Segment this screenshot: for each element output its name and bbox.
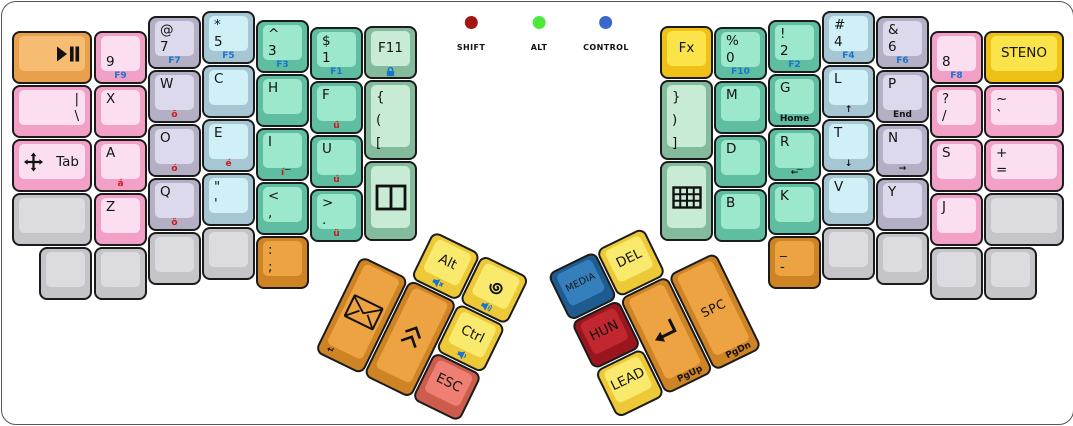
key-front-legend: õ — [150, 110, 199, 121]
key-o[interactable]: Oó — [148, 124, 201, 177]
key-percent-0[interactable]: %0F10 — [714, 27, 767, 80]
key-plus-equals[interactable]: += — [984, 139, 1064, 192]
key-legend: P — [888, 76, 922, 93]
key-a[interactable]: Aá — [94, 139, 147, 192]
key-legend: F — [322, 87, 356, 104]
key-legend: T — [834, 125, 868, 142]
key-legend: U — [322, 141, 356, 158]
key-legend: C — [214, 71, 248, 88]
key-legend: SPC — [698, 295, 729, 322]
key-legend: W — [160, 76, 194, 93]
key-blank[interactable] — [12, 193, 92, 246]
key-greater-period[interactable]: >.ü — [310, 189, 363, 242]
key-legend: STENO — [1001, 45, 1047, 62]
key-x[interactable]: X — [94, 85, 147, 138]
key-c[interactable]: C — [202, 65, 255, 118]
key-legend: DEL — [614, 245, 645, 272]
key-pipe-backslash[interactable]: |\ — [12, 85, 92, 138]
key-legend: N — [888, 130, 922, 147]
key-legend: 1 — [322, 50, 356, 67]
key-legend: [ — [376, 132, 410, 155]
indicator-alt-dot — [533, 16, 546, 29]
key-legend: Z — [106, 199, 140, 216]
key-legend: - — [780, 259, 814, 276]
key-legend: ; — [268, 259, 302, 276]
key-front-legend: F7 — [150, 56, 199, 67]
key-front-legend: ó — [150, 164, 199, 175]
indicator-alt: ALT — [531, 16, 548, 52]
key-front-legend: F8 — [932, 71, 981, 82]
key-legend: | — [74, 91, 79, 108]
play-pause-icon — [56, 45, 80, 62]
key-v[interactable]: V — [822, 173, 875, 226]
key-z[interactable]: Z — [94, 193, 147, 246]
key-b[interactable]: B — [714, 189, 767, 242]
key-legend: ESC — [433, 370, 464, 397]
key-legend: 9 — [106, 54, 140, 71]
key-legend: L — [834, 71, 868, 88]
key-legend: ( — [376, 109, 410, 132]
key-legend: . — [322, 212, 356, 229]
key-legend: M — [726, 87, 760, 104]
key-legend: > — [322, 195, 356, 212]
key-legend: S — [942, 145, 976, 162]
key-legend: : — [268, 242, 302, 259]
key-steno[interactable]: STENO — [984, 31, 1064, 84]
key-f11[interactable]: F11 — [364, 26, 417, 79]
key-less-comma[interactable]: <, — [256, 182, 309, 235]
key-blank[interactable] — [94, 247, 147, 300]
key-n[interactable]: N→ — [876, 124, 929, 177]
key-g[interactable]: GHome — [768, 74, 821, 127]
key-legend: MEDIA — [563, 268, 599, 297]
key-h[interactable]: H — [256, 74, 309, 127]
key-legend: ) — [672, 109, 706, 132]
key-legend: # — [834, 17, 868, 34]
key-front-legend: → — [878, 164, 927, 175]
key-legend: 0 — [726, 50, 760, 67]
key-u[interactable]: Uú — [310, 135, 363, 188]
key-legend: Tab — [56, 154, 79, 171]
key-front-legend: ö — [150, 218, 199, 229]
key-excl-2[interactable]: !2F2 — [768, 20, 821, 73]
key-legend: } — [672, 86, 706, 109]
key-blank[interactable] — [930, 247, 983, 300]
key-quote[interactable]: "' — [202, 173, 255, 226]
key-legend: O — [160, 130, 194, 147]
key-front-legend: F3 — [258, 60, 307, 71]
chevron-double-up-icon — [396, 319, 428, 351]
indicator-control-label: CONTROL — [583, 43, 629, 52]
key-m[interactable]: M — [714, 81, 767, 134]
key-legend: $ — [322, 33, 356, 50]
key-legend: ] — [672, 132, 706, 155]
key-legend: HUN — [587, 317, 622, 345]
key-legend: Ctrl — [458, 322, 487, 348]
key-colon-semicolon[interactable]: :; — [256, 236, 309, 289]
key-p[interactable]: PEnd — [876, 70, 929, 123]
key-blank[interactable] — [822, 227, 875, 280]
key-dollar-1[interactable]: $1F1 — [310, 27, 363, 80]
key-front-legend: ← — [770, 168, 819, 179]
key-open-brackets[interactable]: {([ — [364, 80, 417, 160]
key-legend: J — [942, 199, 976, 216]
key-fx[interactable]: Fx — [660, 26, 713, 79]
key-j[interactable]: J — [930, 193, 983, 246]
key-legend: I — [268, 134, 302, 151]
key-legend: 6 — [888, 39, 922, 56]
key-e[interactable]: Eé — [202, 119, 255, 172]
key-front-legend: á — [96, 179, 145, 190]
key-r[interactable]: R_← — [768, 128, 821, 181]
key-legend: Alt — [436, 251, 460, 274]
key-legend: ! — [780, 26, 814, 43]
key-l[interactable]: L↑ — [822, 65, 875, 118]
key-underscore-dash[interactable]: _- — [768, 236, 821, 289]
key-f[interactable]: Fű — [310, 81, 363, 134]
key-blank[interactable] — [39, 247, 92, 300]
key-legend: 2 — [780, 43, 814, 60]
key-legend: R — [780, 134, 814, 151]
key-legend: * — [214, 17, 248, 34]
key-front-legend: F10 — [716, 67, 765, 78]
key-legend: ~ — [996, 91, 1057, 108]
key-legend: A — [106, 145, 140, 162]
window-split-icon — [375, 184, 407, 211]
move-icon — [24, 152, 43, 171]
key-front-legend: ↓ — [824, 159, 873, 170]
key-legend: G — [780, 80, 814, 97]
key-i[interactable]: I_í — [256, 128, 309, 181]
key-k[interactable]: K — [768, 182, 821, 235]
return-arrow-icon — [647, 315, 683, 349]
key-caret-3[interactable]: ^3F3 — [256, 20, 309, 73]
key-front-legend: F9 — [96, 71, 145, 82]
key-d[interactable]: D — [714, 135, 767, 188]
key-tab[interactable]: Tab — [12, 139, 92, 192]
key-question-slash[interactable]: ?/ — [930, 85, 983, 138]
key-front-legend: ú — [312, 175, 361, 186]
key-legend: Y — [888, 184, 922, 201]
key-legend: V — [834, 179, 868, 196]
key-w[interactable]: Wõ — [148, 70, 201, 123]
key-front-legend: é — [204, 159, 253, 170]
key-legend: { — [376, 86, 410, 109]
key-front-legend: F6 — [878, 56, 927, 67]
key-front-legend: ü — [312, 229, 361, 240]
key-legend: _ — [780, 242, 814, 259]
key-front-legend: End — [878, 110, 927, 121]
key-blank[interactable] — [202, 227, 255, 280]
key-legend: E — [214, 125, 248, 142]
indicator-alt-label: ALT — [531, 43, 548, 52]
keyboard-board: |\Tab9F9XAáZ@7F7WõOóQö*5F5CEé"'^3F3HI_í<… — [2, 2, 1073, 424]
key-tilde-backtick[interactable]: ~` — [984, 85, 1064, 138]
key-legend — [942, 37, 976, 54]
key-s[interactable]: S — [930, 139, 983, 192]
key-legend: = — [996, 162, 1057, 179]
lock-icon — [366, 66, 415, 77]
key-front-legend: ↑ — [824, 105, 873, 116]
key-legend: H — [268, 80, 302, 97]
spiral-icon — [481, 271, 510, 300]
key-front-legend: F1 — [312, 67, 361, 78]
key-star-5[interactable]: *5F5 — [202, 11, 255, 64]
key-front-legend: ű — [312, 121, 361, 132]
key-close-brackets[interactable]: })] — [660, 80, 713, 160]
key-front-legend: í — [258, 168, 307, 179]
envelope-icon — [342, 293, 384, 331]
key-legend: % — [726, 33, 760, 50]
key-blank[interactable] — [876, 232, 929, 285]
key-legend: @ — [160, 22, 194, 39]
keyboard-layout-frame: |\Tab9F9XAáZ@7F7WõOóQö*5F5CEé"'^3F3HI_í<… — [1, 1, 1073, 425]
key-legend: B — [726, 195, 760, 212]
key-9[interactable]: 9F9 — [94, 31, 147, 84]
key-front-legend: F5 — [204, 51, 253, 62]
key-legend: < — [268, 188, 302, 205]
key-legend: ? — [942, 91, 976, 108]
indicator-shift-label: SHIFT — [457, 43, 485, 52]
key-legend: F11 — [378, 40, 403, 57]
key-front-legend: Home — [770, 114, 819, 125]
key-legend: ^ — [268, 26, 302, 43]
key-legend: , — [268, 205, 302, 222]
key-legend: 5 — [214, 34, 248, 51]
key-q[interactable]: Qö — [148, 178, 201, 231]
key-legend: Fx — [679, 40, 695, 57]
key-legend — [106, 37, 140, 54]
key-legend: 7 — [160, 39, 194, 56]
key-front-legend: F4 — [824, 51, 873, 62]
indicator-shift-dot — [464, 16, 477, 29]
key-legend: LEAD — [608, 364, 648, 395]
key-legend: / — [942, 108, 976, 125]
key-amp-6[interactable]: &6F6 — [876, 16, 929, 69]
key-legend: ` — [996, 108, 1057, 125]
key-hash-4[interactable]: #4F4 — [822, 11, 875, 64]
indicator-shift: SHIFT — [457, 16, 485, 52]
key-legend: + — [996, 145, 1057, 162]
key-y[interactable]: Y — [876, 178, 929, 231]
key-t[interactable]: T↓ — [822, 119, 875, 172]
key-blank[interactable] — [148, 232, 201, 285]
key-legend: 8 — [942, 54, 976, 71]
key-legend: & — [888, 22, 922, 39]
key-blank[interactable] — [984, 247, 1037, 300]
key-play-pause[interactable] — [12, 31, 92, 84]
key-legend: ' — [214, 196, 248, 213]
key-legend: Q — [160, 184, 194, 201]
key-legend: 3 — [268, 43, 302, 60]
key-legend: K — [780, 188, 814, 205]
key-legend: X — [106, 91, 140, 108]
key-front-legend: F2 — [770, 60, 819, 71]
indicator-control-dot — [600, 16, 613, 29]
key-at-7[interactable]: @7F7 — [148, 16, 201, 69]
key-legend: " — [214, 179, 248, 196]
key-legend: \ — [74, 108, 79, 125]
key-blank[interactable] — [984, 193, 1064, 246]
key-legend: 4 — [834, 34, 868, 51]
key-8[interactable]: 8F8 — [930, 31, 983, 84]
key-legend: D — [726, 141, 760, 158]
indicator-control: CONTROL — [583, 16, 629, 52]
